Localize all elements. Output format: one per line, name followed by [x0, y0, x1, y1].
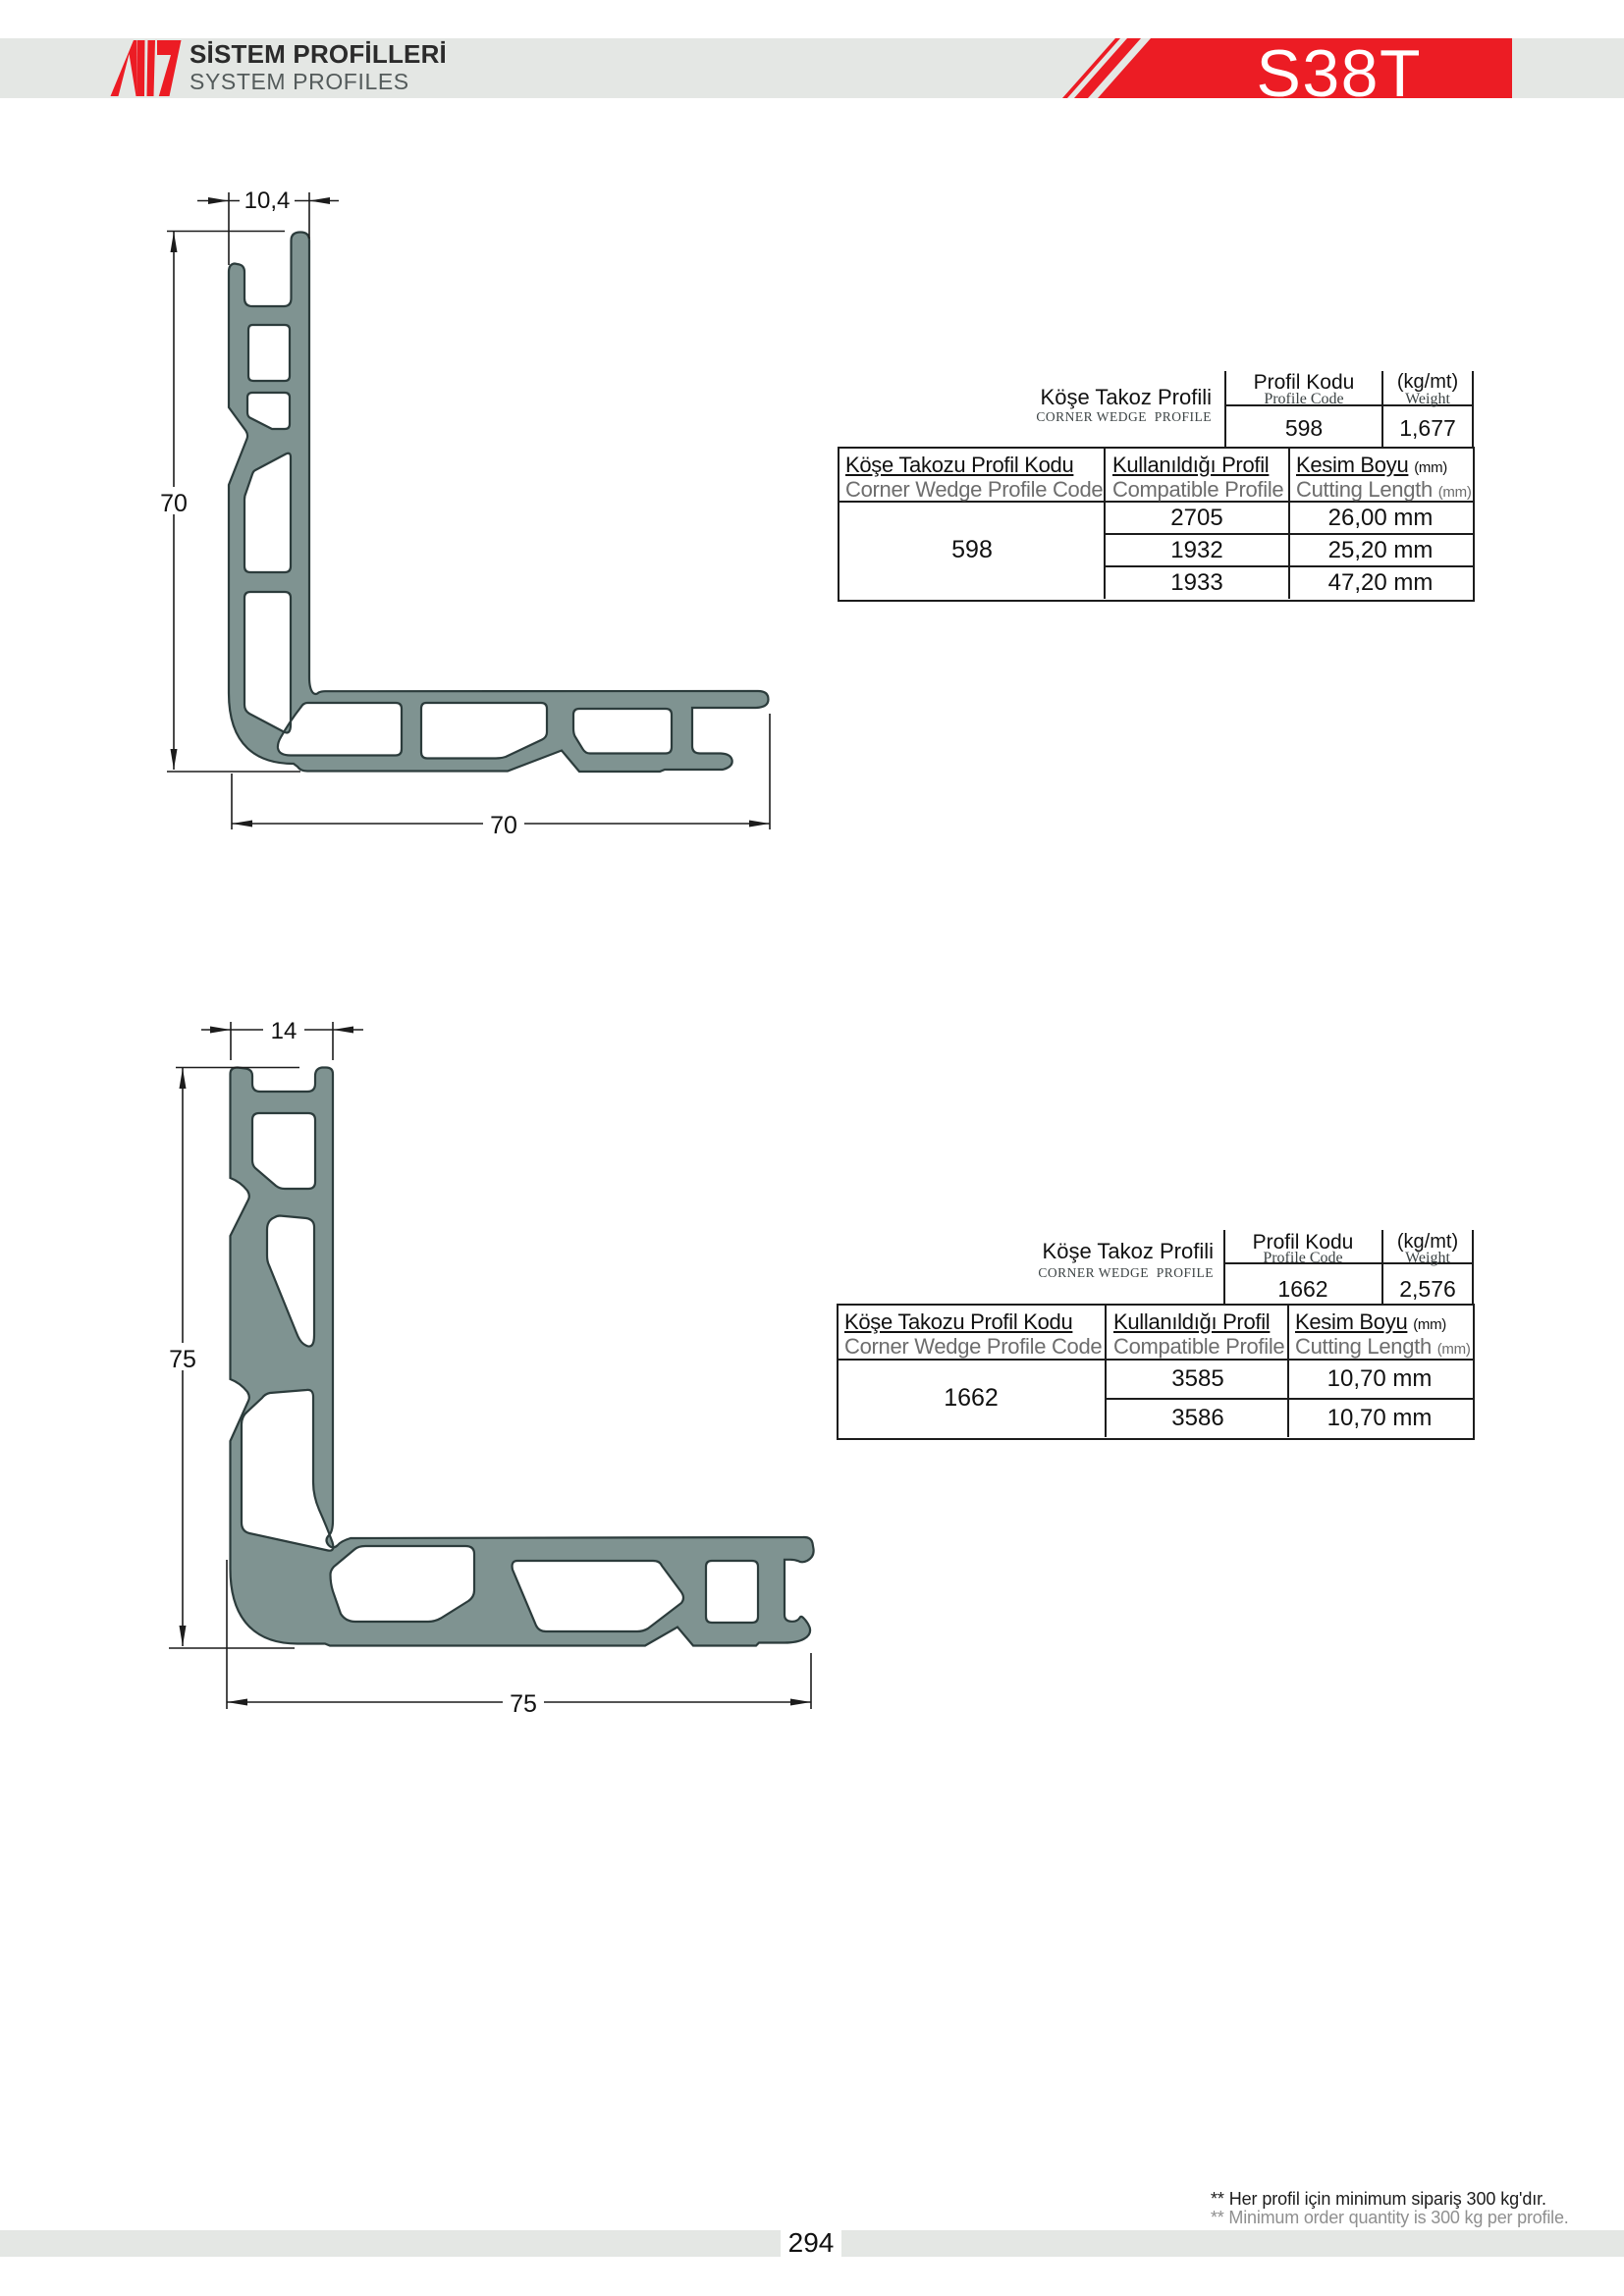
svg-text:70: 70	[160, 490, 188, 517]
svg-text:70: 70	[490, 812, 517, 839]
svg-text:14: 14	[271, 1018, 298, 1044]
svg-text:75: 75	[169, 1346, 196, 1373]
svg-text:75: 75	[510, 1690, 537, 1718]
svg-text:10,4: 10,4	[244, 187, 291, 214]
